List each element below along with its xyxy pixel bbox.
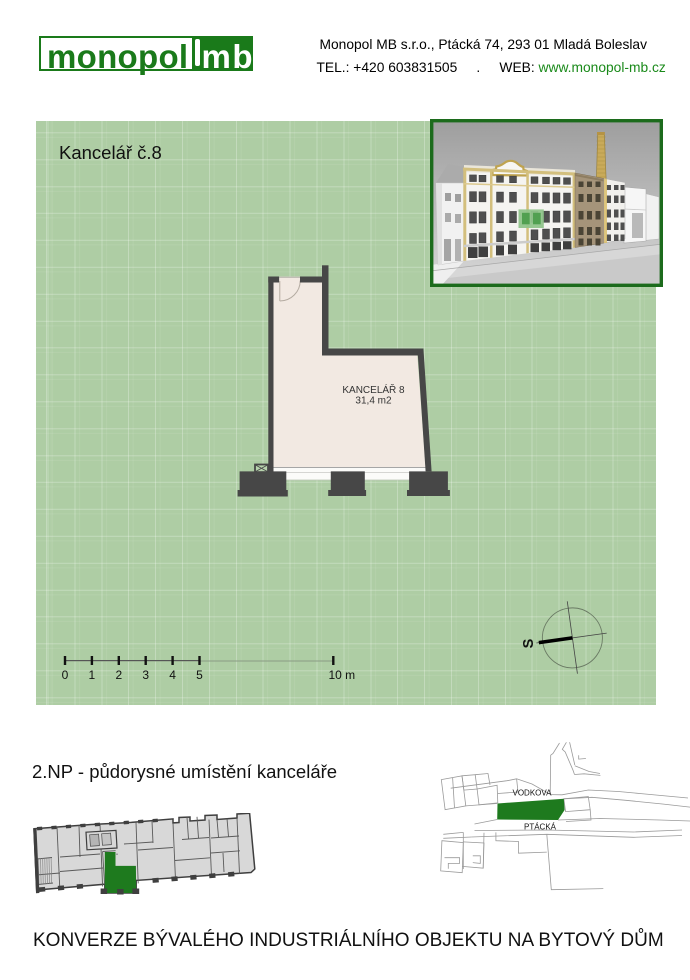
svg-text:S: S bbox=[521, 638, 537, 648]
svg-text:31,4 m2: 31,4 m2 bbox=[355, 396, 392, 407]
svg-text:10 m: 10 m bbox=[329, 668, 356, 682]
svg-text:2: 2 bbox=[115, 668, 122, 682]
svg-text:VODKOVA: VODKOVA bbox=[513, 789, 553, 798]
svg-text:PTÁCKÁ: PTÁCKÁ bbox=[524, 822, 557, 831]
svg-text:1: 1 bbox=[89, 668, 96, 682]
svg-text:0: 0 bbox=[62, 668, 69, 682]
svg-text:4: 4 bbox=[169, 668, 176, 682]
svg-text:5: 5 bbox=[196, 668, 203, 682]
svg-text:3: 3 bbox=[142, 668, 149, 682]
svg-text:KANCELÁŘ 8: KANCELÁŘ 8 bbox=[342, 383, 405, 396]
